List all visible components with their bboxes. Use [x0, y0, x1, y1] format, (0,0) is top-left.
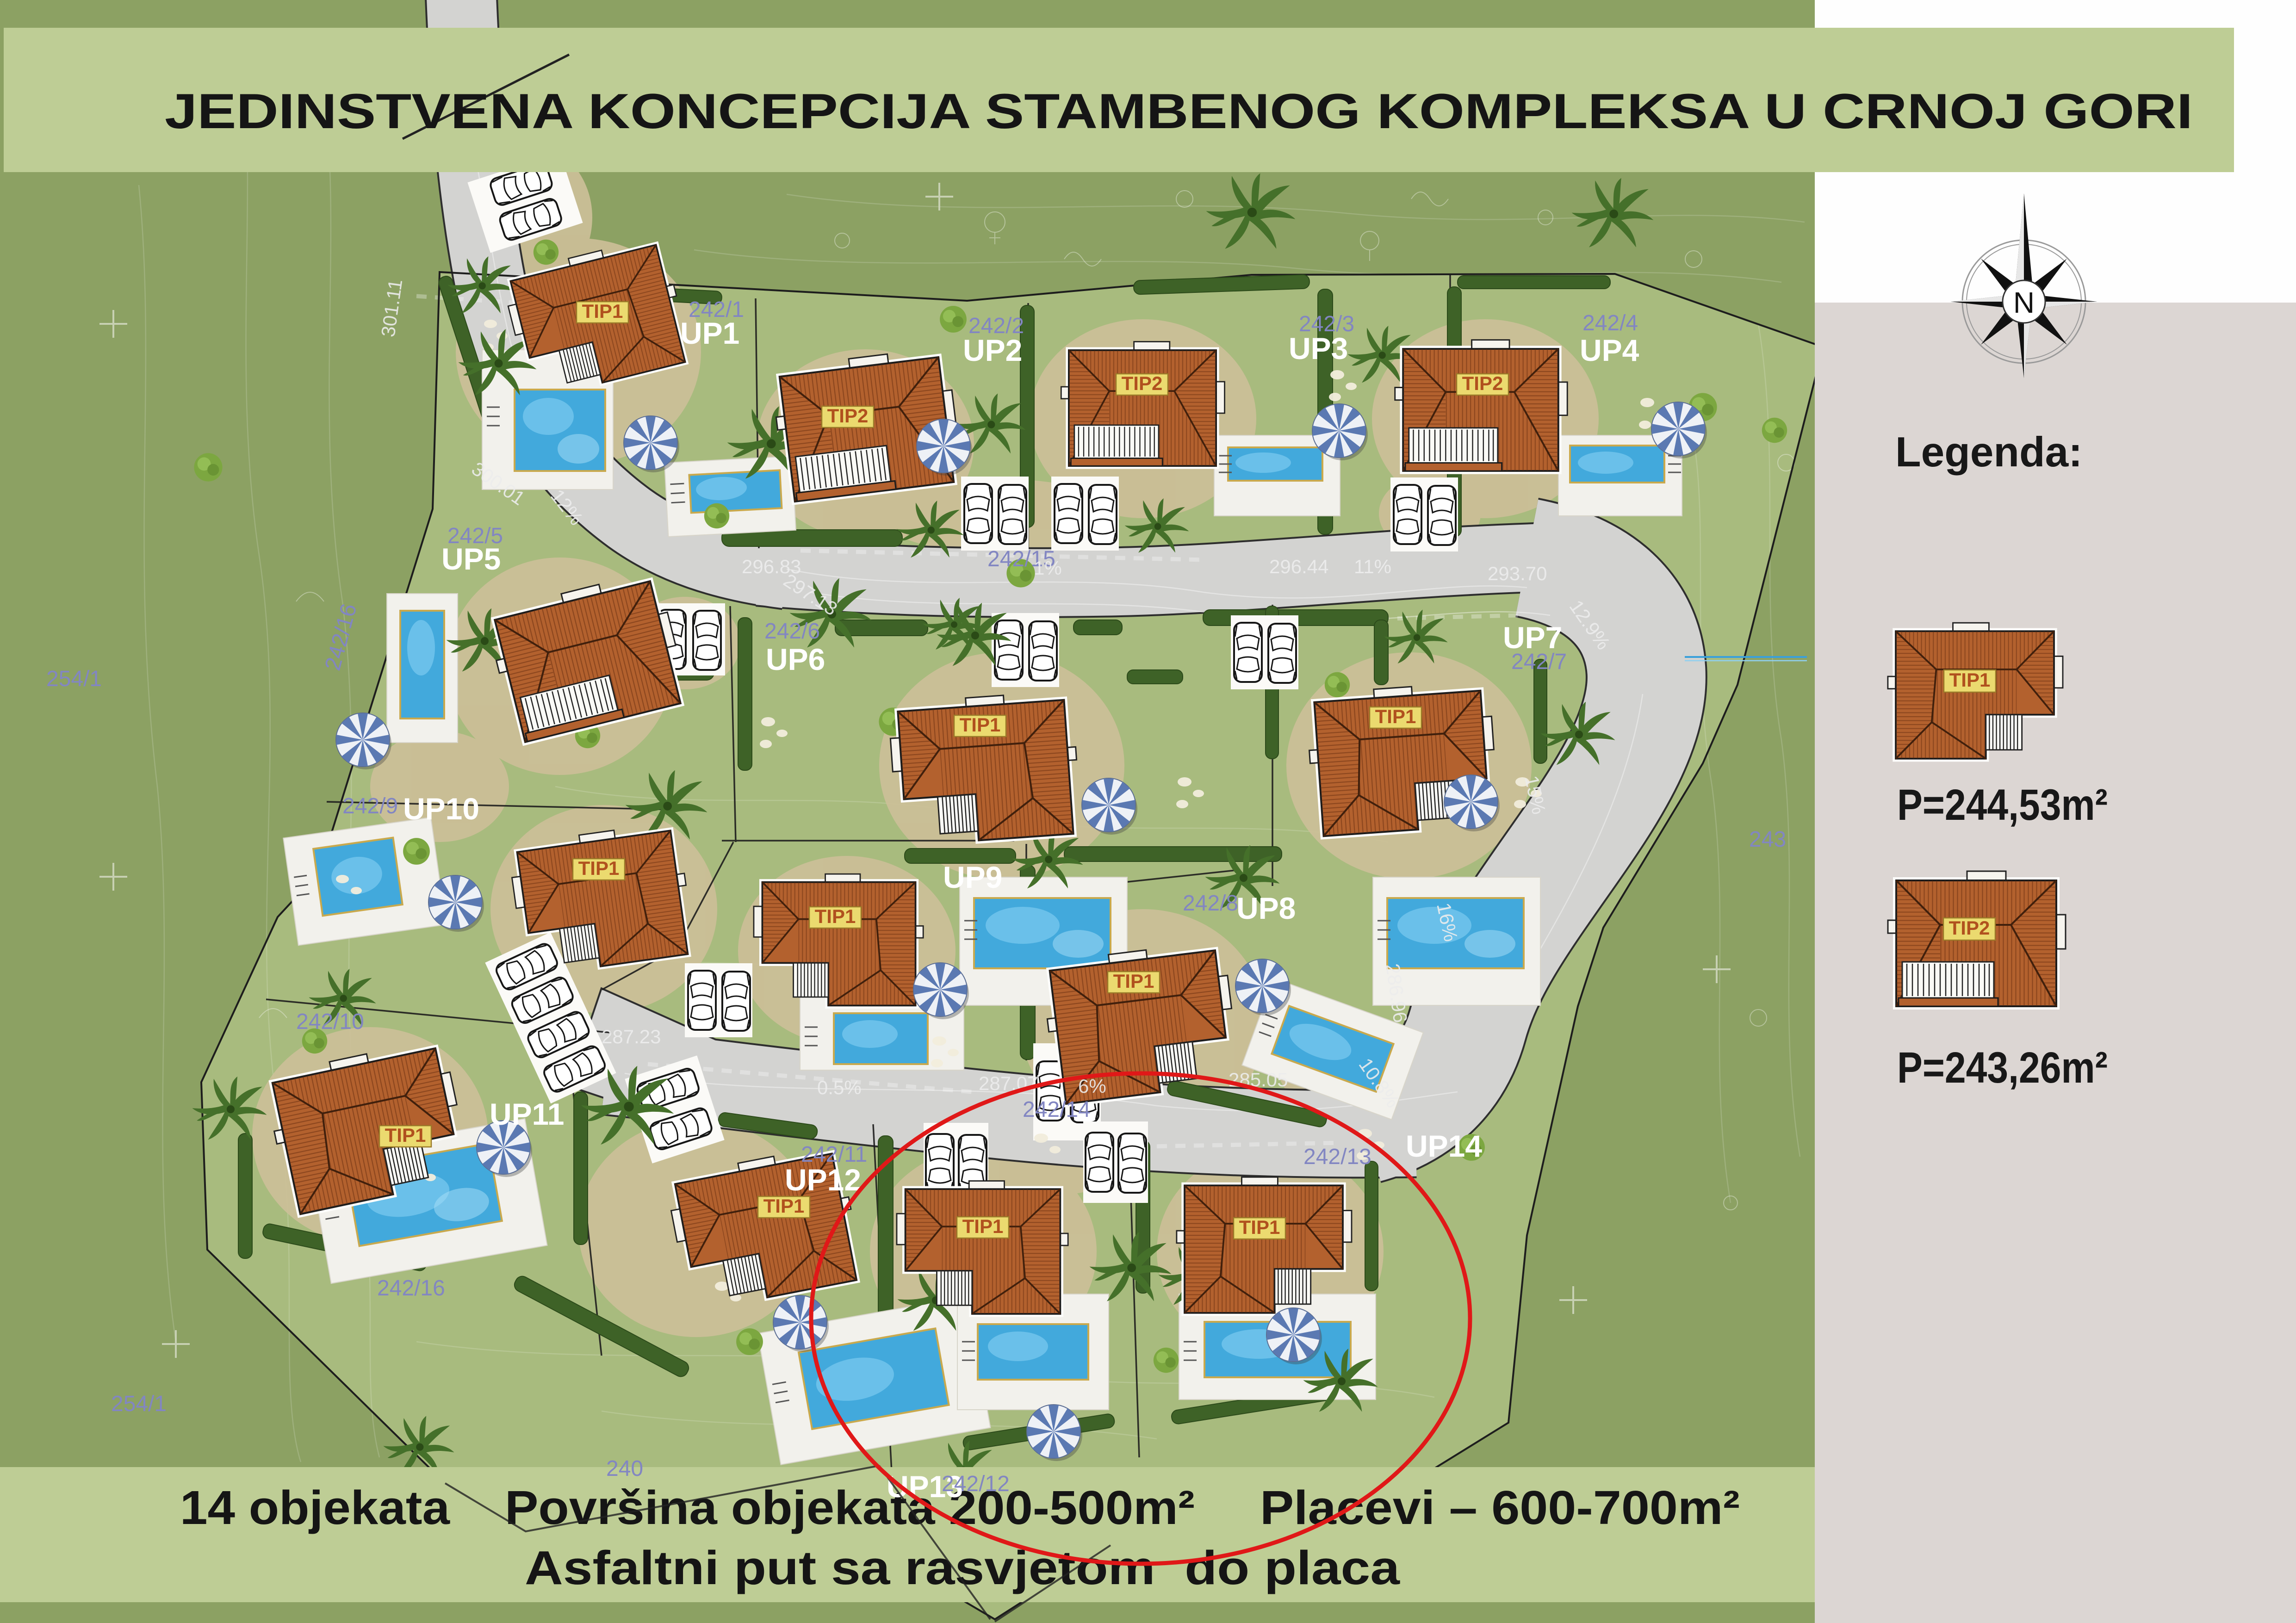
svg-text:0.5%: 0.5%	[817, 1077, 862, 1098]
svg-text:TIP1: TIP1	[385, 1124, 426, 1146]
svg-text:UP3: UP3	[1289, 331, 1348, 365]
svg-text:242/1: 242/1	[689, 297, 744, 322]
svg-text:242/2: 242/2	[968, 314, 1024, 338]
svg-text:242/4: 242/4	[1582, 311, 1638, 335]
svg-text:TIP1: TIP1	[1239, 1216, 1280, 1238]
svg-text:242/6: 242/6	[764, 619, 820, 644]
svg-text:Placevi – 600-700m²: Placevi – 600-700m²	[1260, 1481, 1740, 1534]
svg-text:TIP1: TIP1	[962, 1215, 1004, 1237]
svg-text:296.83: 296.83	[742, 556, 801, 577]
svg-text:14 objekata: 14 objekata	[180, 1481, 450, 1534]
svg-text:P=244,53m²: P=244,53m²	[1897, 781, 2108, 830]
svg-text:N: N	[2013, 286, 2035, 319]
svg-text:TIP1: TIP1	[960, 714, 1001, 736]
svg-text:UP9: UP9	[943, 860, 1002, 894]
svg-text:TIP1: TIP1	[1113, 970, 1154, 992]
svg-text:UP14: UP14	[1406, 1129, 1482, 1163]
svg-text:242/10: 242/10	[296, 1010, 364, 1034]
svg-text:242/12: 242/12	[942, 1472, 1010, 1496]
svg-text:P=243,26m²: P=243,26m²	[1897, 1043, 2108, 1092]
svg-text:1%: 1%	[1034, 557, 1062, 579]
svg-text:UP10: UP10	[403, 792, 479, 826]
svg-text:242/3: 242/3	[1299, 312, 1354, 336]
svg-text:UP6: UP6	[766, 642, 825, 676]
svg-text:242/13: 242/13	[1303, 1145, 1371, 1169]
svg-text:TIP1: TIP1	[1949, 669, 1991, 691]
svg-text:TIP2: TIP2	[1949, 917, 1990, 939]
svg-text:242/9: 242/9	[342, 794, 398, 818]
svg-text:242/16: 242/16	[377, 1276, 445, 1301]
svg-text:242/11: 242/11	[801, 1142, 867, 1167]
svg-text:287.23: 287.23	[602, 1026, 661, 1047]
svg-text:242/7: 242/7	[1511, 650, 1567, 674]
svg-text:TIP1: TIP1	[1375, 706, 1416, 727]
svg-text:TIP2: TIP2	[827, 405, 869, 427]
svg-text:UP4: UP4	[1580, 333, 1639, 367]
svg-text:UP12: UP12	[785, 1163, 861, 1197]
svg-text:Legenda:: Legenda:	[1895, 429, 2082, 476]
svg-text:240: 240	[606, 1456, 643, 1481]
svg-text:TIP1: TIP1	[578, 857, 620, 879]
svg-text:254/1: 254/1	[111, 1392, 167, 1416]
svg-text:TIP2: TIP2	[1122, 372, 1163, 394]
svg-text:UP8: UP8	[1236, 891, 1296, 925]
svg-text:285.05: 285.05	[1229, 1069, 1288, 1090]
svg-text:JEDINSTVENA KONCEPCIJA STAMBEN: JEDINSTVENA KONCEPCIJA STAMBENOG KOMPLEK…	[165, 83, 2193, 139]
svg-text:296.44: 296.44	[1269, 556, 1328, 577]
svg-text:254/1: 254/1	[46, 667, 102, 691]
svg-text:TIP2: TIP2	[1462, 372, 1503, 394]
svg-text:UP2: UP2	[963, 333, 1022, 367]
svg-text:242/14: 242/14	[1023, 1097, 1091, 1122]
svg-text:287.07: 287.07	[979, 1072, 1038, 1094]
svg-text:242/8: 242/8	[1183, 891, 1238, 916]
svg-text:Površina objekata 200-500m²: Površina objekata 200-500m²	[505, 1481, 1195, 1534]
svg-text:TIP1: TIP1	[763, 1195, 805, 1217]
svg-text:242/5: 242/5	[447, 524, 503, 548]
svg-text:243: 243	[1749, 827, 1786, 852]
svg-text:Asfaltni put sa rasvjetom do: Asfaltni put sa rasvjetom do placa	[525, 1541, 1400, 1594]
svg-text:TIP1: TIP1	[582, 300, 623, 322]
svg-text:UP11: UP11	[490, 1097, 564, 1131]
svg-text:TIP1: TIP1	[815, 905, 856, 927]
svg-text:11%: 11%	[1354, 556, 1391, 577]
svg-text:293.70: 293.70	[1488, 563, 1547, 584]
